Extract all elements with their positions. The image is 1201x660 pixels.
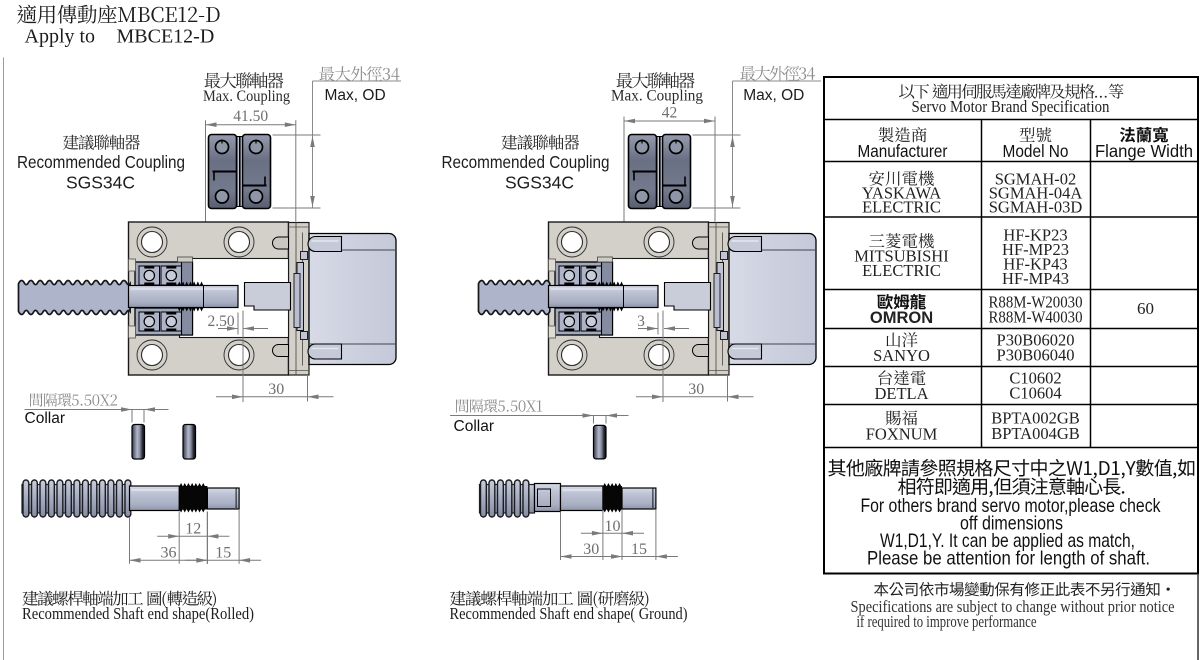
svg-text:Recommended Shaft end shape( G: Recommended Shaft end shape( Ground) [450, 604, 688, 623]
svg-text:SGMAH-03D: SGMAH-03D [989, 198, 1083, 217]
svg-text:Apply to: Apply to [25, 26, 96, 48]
svg-text:Recommended Coupling: Recommended Coupling [17, 152, 185, 172]
svg-text:if required to improve perform: if required to improve performance [857, 612, 1037, 631]
svg-text:Max. Coupling: Max. Coupling [203, 88, 290, 105]
svg-text:42: 42 [662, 105, 678, 122]
svg-text:Collar: Collar [25, 410, 65, 427]
svg-text:30: 30 [268, 381, 284, 398]
svg-text:P30B06040: P30B06040 [997, 346, 1075, 365]
svg-text:Max, OD: Max, OD [743, 87, 804, 104]
svg-text:FOXNUM: FOXNUM [866, 425, 938, 444]
svg-text:15: 15 [631, 541, 647, 558]
svg-text:BPTA004GB: BPTA004GB [991, 424, 1080, 443]
svg-text:Recommended Shaft end shape(Ro: Recommended Shaft end shape(Rolled) [22, 604, 254, 623]
svg-text:Please be attention for length: Please be attention for length of shaft. [867, 548, 1150, 570]
svg-text:HF-MP43: HF-MP43 [1002, 269, 1069, 288]
svg-text:Max, OD: Max, OD [325, 87, 386, 104]
svg-text:Collar: Collar [454, 418, 494, 435]
svg-text:Flange Width: Flange Width [1095, 141, 1193, 161]
svg-text:OMRON: OMRON [870, 309, 933, 327]
svg-text:2.50: 2.50 [207, 313, 234, 330]
svg-text:Recommended Coupling: Recommended Coupling [442, 152, 610, 172]
svg-text:10: 10 [604, 518, 620, 535]
svg-text:SANYO: SANYO [873, 346, 930, 365]
svg-text:3: 3 [637, 313, 645, 330]
svg-text:DETLA: DETLA [874, 384, 928, 403]
svg-text:Servo Motor Brand Specificatio: Servo Motor Brand Specification [912, 97, 1110, 116]
svg-text:60: 60 [1137, 299, 1154, 318]
svg-text:ELECTRIC: ELECTRIC [862, 198, 941, 217]
svg-text:30: 30 [583, 541, 599, 558]
svg-text:R88M-W40030: R88M-W40030 [989, 308, 1083, 327]
svg-text:Model No: Model No [1003, 141, 1069, 161]
svg-text:SGS34C: SGS34C [505, 173, 574, 193]
svg-text:MBCE12-D: MBCE12-D [117, 26, 215, 48]
svg-text:36: 36 [160, 545, 176, 562]
svg-text:12: 12 [185, 521, 201, 538]
svg-text:30: 30 [688, 381, 704, 398]
svg-text:SGS34C: SGS34C [66, 173, 135, 193]
svg-text:Max. Coupling: Max. Coupling [611, 88, 703, 105]
svg-text:ELECTRIC: ELECTRIC [862, 261, 941, 280]
svg-text:41.50: 41.50 [233, 108, 268, 125]
svg-text:C10604: C10604 [1009, 384, 1061, 403]
svg-text:15: 15 [215, 545, 231, 562]
svg-text:Manufacturer: Manufacturer [858, 141, 948, 161]
